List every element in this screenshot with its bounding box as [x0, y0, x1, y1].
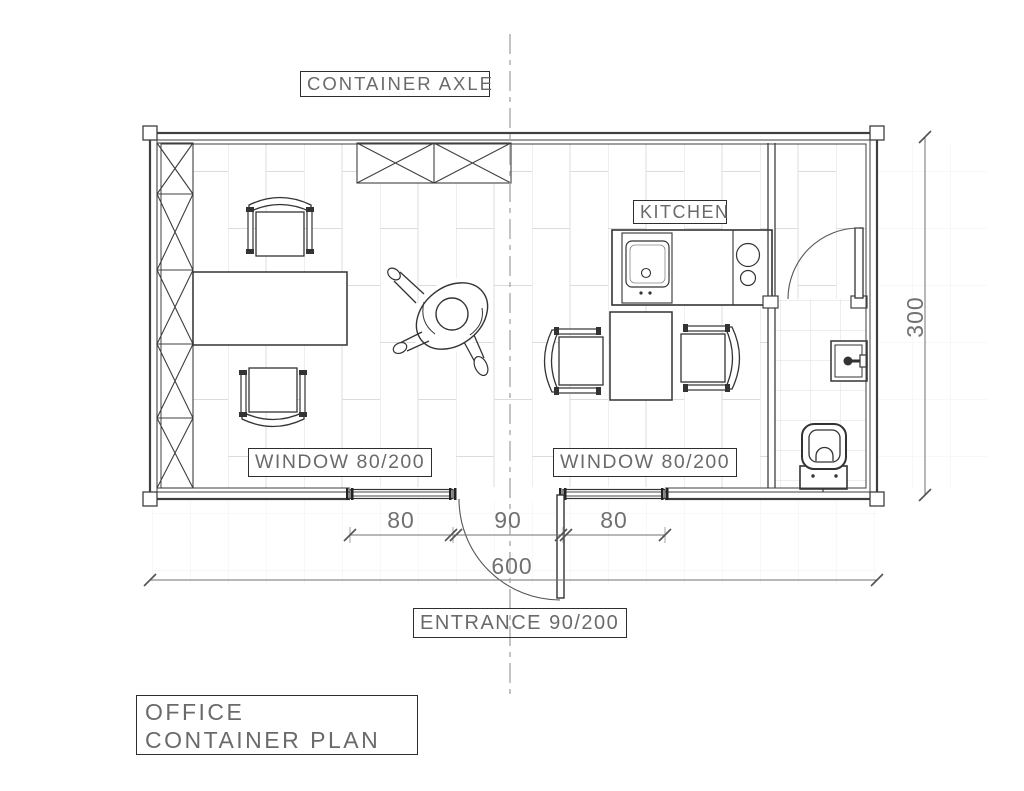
toilet — [800, 424, 847, 492]
wash-basin — [831, 341, 867, 381]
entrance-label: ENTRANCE 90/200 — [413, 608, 627, 638]
basin-faucet — [844, 357, 853, 366]
dim-total-height: 300 — [902, 287, 928, 347]
window-left-label: WINDOW 80/200 — [248, 448, 432, 477]
kitchen-label: KITCHEN — [633, 200, 727, 224]
window-right-label: WINDOW 80/200 — [553, 448, 737, 477]
wardrobe-x-strip — [157, 143, 193, 488]
meeting-table — [610, 312, 672, 400]
cooktop-burner-large — [737, 244, 760, 267]
dim-seg-mid: 90 — [487, 507, 529, 534]
dim-total-width: 600 — [482, 553, 542, 580]
kitchen-sink — [626, 241, 669, 287]
corner-fitting-bottom-left — [143, 492, 157, 506]
corner-fitting-top-left — [143, 126, 157, 140]
person-head — [436, 298, 468, 330]
corner-fitting-top-right — [870, 126, 884, 140]
storage-x-cabinet — [357, 143, 511, 183]
title-block: OFFICE CONTAINER PLAN — [136, 695, 418, 755]
container-axle-label: CONTAINER AXLE — [300, 71, 490, 97]
faint-grid-right — [877, 143, 987, 489]
bathroom-door-leaf — [855, 228, 863, 298]
door-jamb-left — [763, 296, 778, 308]
dim-seg-right: 80 — [593, 507, 635, 534]
dim-seg-left: 80 — [380, 507, 422, 534]
entrance-door-leaf — [557, 495, 564, 598]
desk — [193, 272, 347, 345]
floor-plan-canvas: CONTAINER AXLE KITCHEN WINDOW 80/200 WIN… — [0, 0, 1024, 791]
corner-fitting-bottom-right — [870, 492, 884, 506]
floor-plan-drawing — [0, 0, 1024, 791]
kitchen-counter — [612, 230, 772, 305]
cooktop-burner-small — [741, 271, 756, 286]
sink-drain — [642, 269, 651, 278]
